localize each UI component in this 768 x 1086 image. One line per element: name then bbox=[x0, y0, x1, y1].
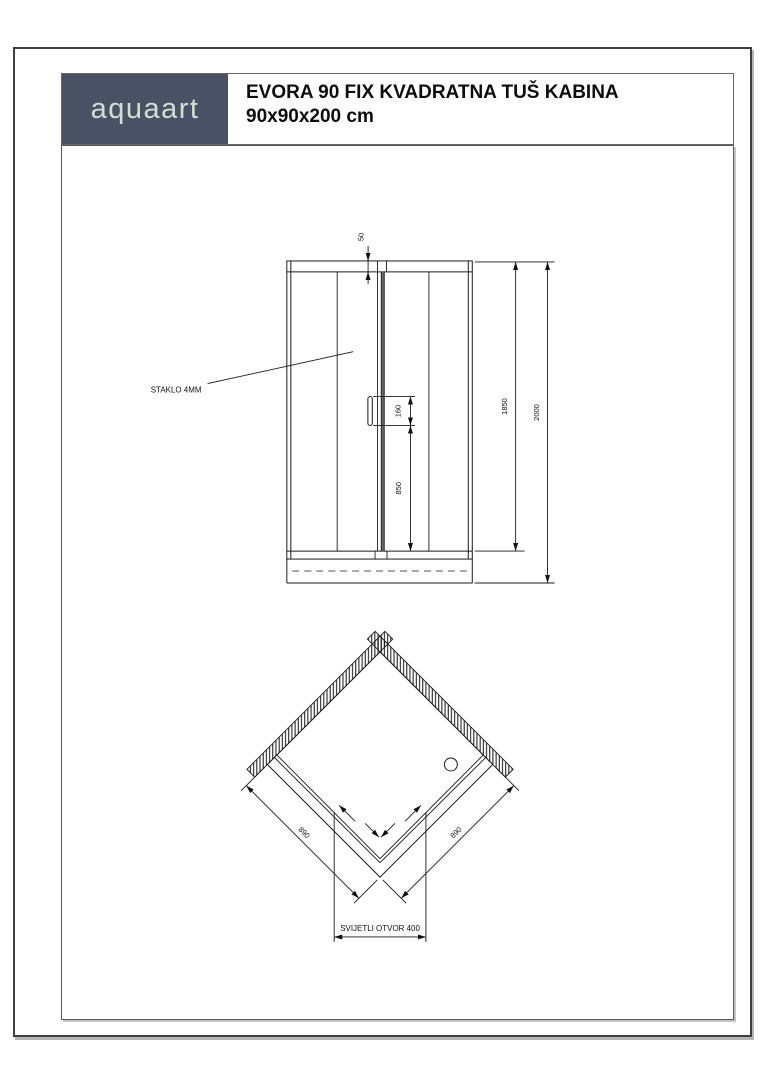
dim-label-handle-length: 160 bbox=[393, 405, 402, 417]
glass-panels-plan bbox=[274, 755, 485, 863]
product-title: EVORA 90 FIX KVADRATNA TUŠ KABINA bbox=[246, 81, 729, 105]
dim-label-glass-height: 1850 bbox=[500, 398, 509, 415]
leader-line bbox=[208, 352, 354, 384]
sliding-door-edge bbox=[381, 272, 384, 551]
door-slide-arrows bbox=[339, 805, 421, 837]
drawing-area: 50 160 850 bbox=[61, 145, 734, 1020]
brand-name: aquaart bbox=[91, 93, 200, 126]
dimension-glass-height: 1850 bbox=[475, 262, 555, 551]
door-handle bbox=[368, 397, 372, 426]
shower-frame-outline bbox=[287, 261, 472, 559]
dimension-top-profile: 50 bbox=[357, 233, 368, 284]
product-dimensions: 90x90x200 cm bbox=[246, 105, 729, 129]
page-border: aquaart EVORA 90 FIX KVADRATNA TUŠ KABIN… bbox=[13, 47, 752, 1037]
spec-sheet-page: { "header": { "brand": "aquaart", "title… bbox=[0, 0, 768, 1086]
technical-drawing: 50 160 850 bbox=[62, 146, 733, 1019]
drain-circle bbox=[444, 758, 457, 771]
front-view-elevation: 50 160 850 bbox=[151, 233, 555, 583]
dim-label-clear-opening: SVIJETLI OTVOR 400 bbox=[340, 924, 420, 933]
top-view-plan: 890 890 SVIJETLI OTVOR 400 bbox=[241, 631, 519, 942]
shower-tray bbox=[287, 559, 472, 583]
title-block: aquaart EVORA 90 FIX KVADRATNA TUŠ KABIN… bbox=[61, 73, 734, 145]
glass-callout: STAKLO 4MM bbox=[151, 352, 353, 395]
wall-hatch-left bbox=[247, 631, 393, 777]
tray-outline bbox=[267, 652, 492, 877]
dim-label-top-profile: 50 bbox=[357, 233, 366, 241]
dimension-handle-height: 850 bbox=[394, 425, 410, 551]
dim-label-total-height: 2000 bbox=[532, 404, 541, 421]
dim-label-handle-height: 850 bbox=[394, 482, 403, 494]
dimension-handle-length: 160 bbox=[373, 397, 415, 426]
brand-logo: aquaart bbox=[62, 74, 228, 144]
glass-label: STAKLO 4MM bbox=[151, 386, 202, 395]
product-title-box: EVORA 90 FIX KVADRATNA TUŠ KABINA 90x90x… bbox=[228, 74, 733, 144]
dimension-total-height: 2000 bbox=[475, 262, 555, 583]
wall-hatch-right bbox=[367, 631, 513, 777]
